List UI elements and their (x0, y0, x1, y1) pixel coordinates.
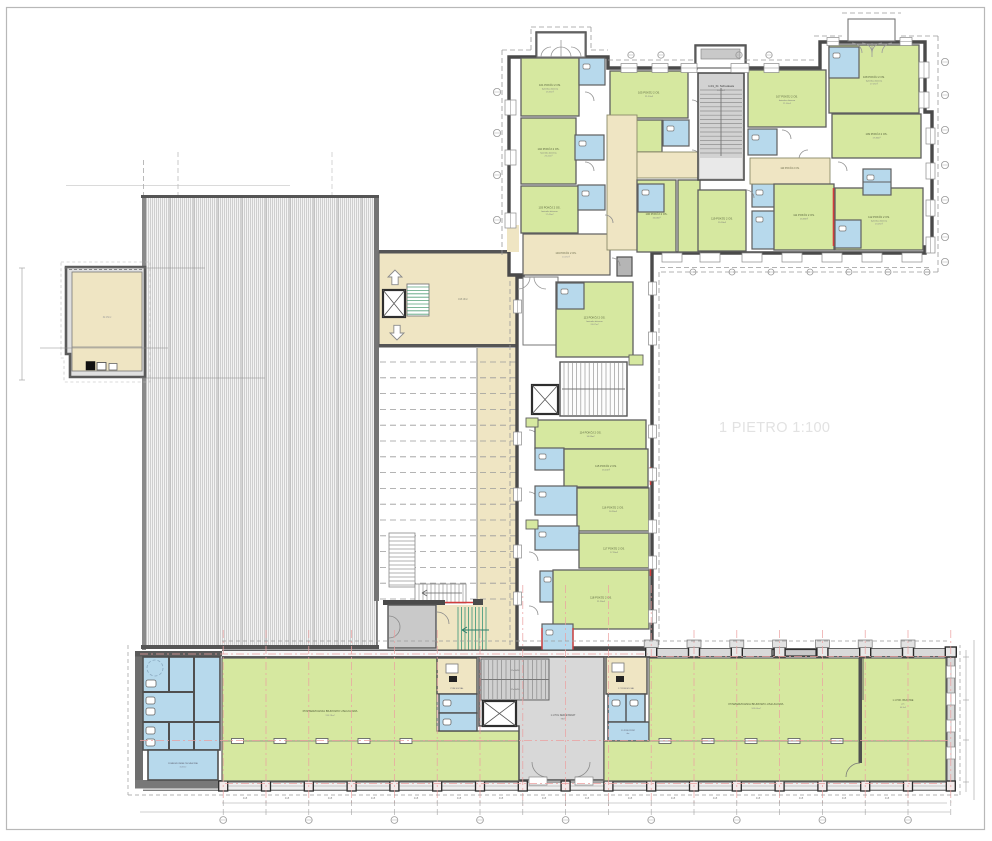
svg-text:POWIERZCHNIA BIUROWO USŁUGOWA: POWIERZCHNIA BIUROWO USŁUGOWA (303, 709, 358, 713)
svg-text:418: 418 (799, 796, 804, 800)
svg-text:21.12m²: 21.12m² (645, 95, 653, 98)
svg-text:24.05m²: 24.05m² (562, 255, 570, 258)
svg-text:1.1 POK. BIUROWE: 1.1 POK. BIUROWE (893, 700, 914, 702)
svg-text:łazienka dzienna: łazienka dzienna (540, 152, 557, 154)
svg-text:16.38m²: 16.38m² (800, 217, 808, 220)
svg-text:łazienka dzienna: łazienka dzienna (866, 80, 883, 82)
svg-text:418: 418 (671, 796, 676, 800)
svg-text:1.5 POM. PORZ.: 1.5 POM. PORZ. (621, 730, 636, 732)
svg-text:15.18m²: 15.18m² (718, 221, 726, 224)
svg-text:24.06m²: 24.06m² (717, 89, 725, 92)
svg-text:POM.SOCJAL: POM.SOCJAL (451, 687, 465, 690)
svg-text:418: 418 (628, 796, 633, 800)
svg-text:łazienka dzienna: łazienka dzienna (541, 211, 558, 213)
svg-text:21.06m²: 21.06m² (783, 102, 791, 105)
svg-text:418: 418 (371, 796, 376, 800)
svg-text:418: 418 (414, 796, 419, 800)
svg-text:193.28m²: 193.28m² (325, 714, 335, 717)
svg-text:17.35m²: 17.35m² (872, 136, 880, 139)
svg-text:418: 418 (756, 796, 761, 800)
svg-text:98m²: 98m² (561, 717, 566, 720)
svg-text:1.01_Kl. Schodowa: 1.01_Kl. Schodowa (708, 84, 734, 88)
svg-text:4m²: 4m² (626, 732, 629, 735)
svg-text:17.45m²: 17.45m² (545, 213, 553, 216)
svg-text:17.26m²: 17.26m² (610, 551, 618, 554)
svg-text:1.7 POM.SOCJAL: 1.7 POM.SOCJAL (618, 687, 635, 690)
svg-text:25.36m²: 25.36m² (546, 91, 554, 94)
svg-text:32.15m²: 32.15m² (103, 316, 112, 319)
svg-text:26.67m²: 26.67m² (590, 323, 598, 326)
svg-text:21.26m²: 21.26m² (597, 600, 605, 603)
svg-text:418: 418 (713, 796, 718, 800)
svg-text:15.35m²: 15.35m² (180, 765, 187, 768)
svg-text:1 PIETRO 1:100: 1 PIETRO 1:100 (719, 420, 831, 436)
svg-text:16.24m²: 16.24m² (602, 468, 610, 471)
svg-text:418: 418 (842, 796, 847, 800)
svg-text:418: 418 (542, 796, 547, 800)
svg-text:17x 16/30: 17x 16/30 (511, 670, 521, 672)
svg-text:16.26m²: 16.26m² (609, 510, 617, 513)
svg-text:163.64m²: 163.64m² (751, 707, 761, 710)
svg-text:418: 418 (285, 796, 290, 800)
svg-text:23.05m²: 23.05m² (875, 223, 883, 226)
svg-text:198.16m²: 198.16m² (458, 298, 468, 301)
svg-text:418: 418 (499, 796, 504, 800)
svg-text:15.03m²: 15.03m² (652, 216, 660, 219)
svg-text:418: 418 (585, 796, 590, 800)
svg-text:16.26m²: 16.26m² (586, 435, 594, 438)
svg-text:17x 16/30: 17x 16/30 (511, 689, 521, 691)
svg-text:łazienka dzienna: łazienka dzienna (871, 220, 888, 222)
svg-text:1.1 HOL SEKRETARIAT: 1.1 HOL SEKRETARIAT (551, 714, 576, 717)
svg-text:25.41m²: 25.41m² (544, 155, 552, 158)
svg-text:418: 418 (457, 796, 462, 800)
svg-text:łazienka dzienna: łazienka dzienna (586, 321, 603, 323)
svg-text:POMIESZCZENIE TECHNICZNE: POMIESZCZENIE TECHNICZNE (168, 763, 198, 765)
svg-text:418: 418 (328, 796, 333, 800)
svg-text:27.05m²: 27.05m² (870, 83, 878, 86)
svg-text:418: 418 (885, 796, 890, 800)
svg-text:60.3m²: 60.3m² (900, 706, 907, 709)
svg-text:pm: pm (902, 703, 905, 705)
svg-text:łazienka dzienna: łazienka dzienna (779, 100, 796, 102)
svg-text:łazienka dzienna: łazienka dzienna (542, 88, 559, 90)
svg-text:418: 418 (243, 796, 248, 800)
svg-text:110 POKÓJ 2 OS.: 110 POKÓJ 2 OS. (780, 167, 800, 170)
